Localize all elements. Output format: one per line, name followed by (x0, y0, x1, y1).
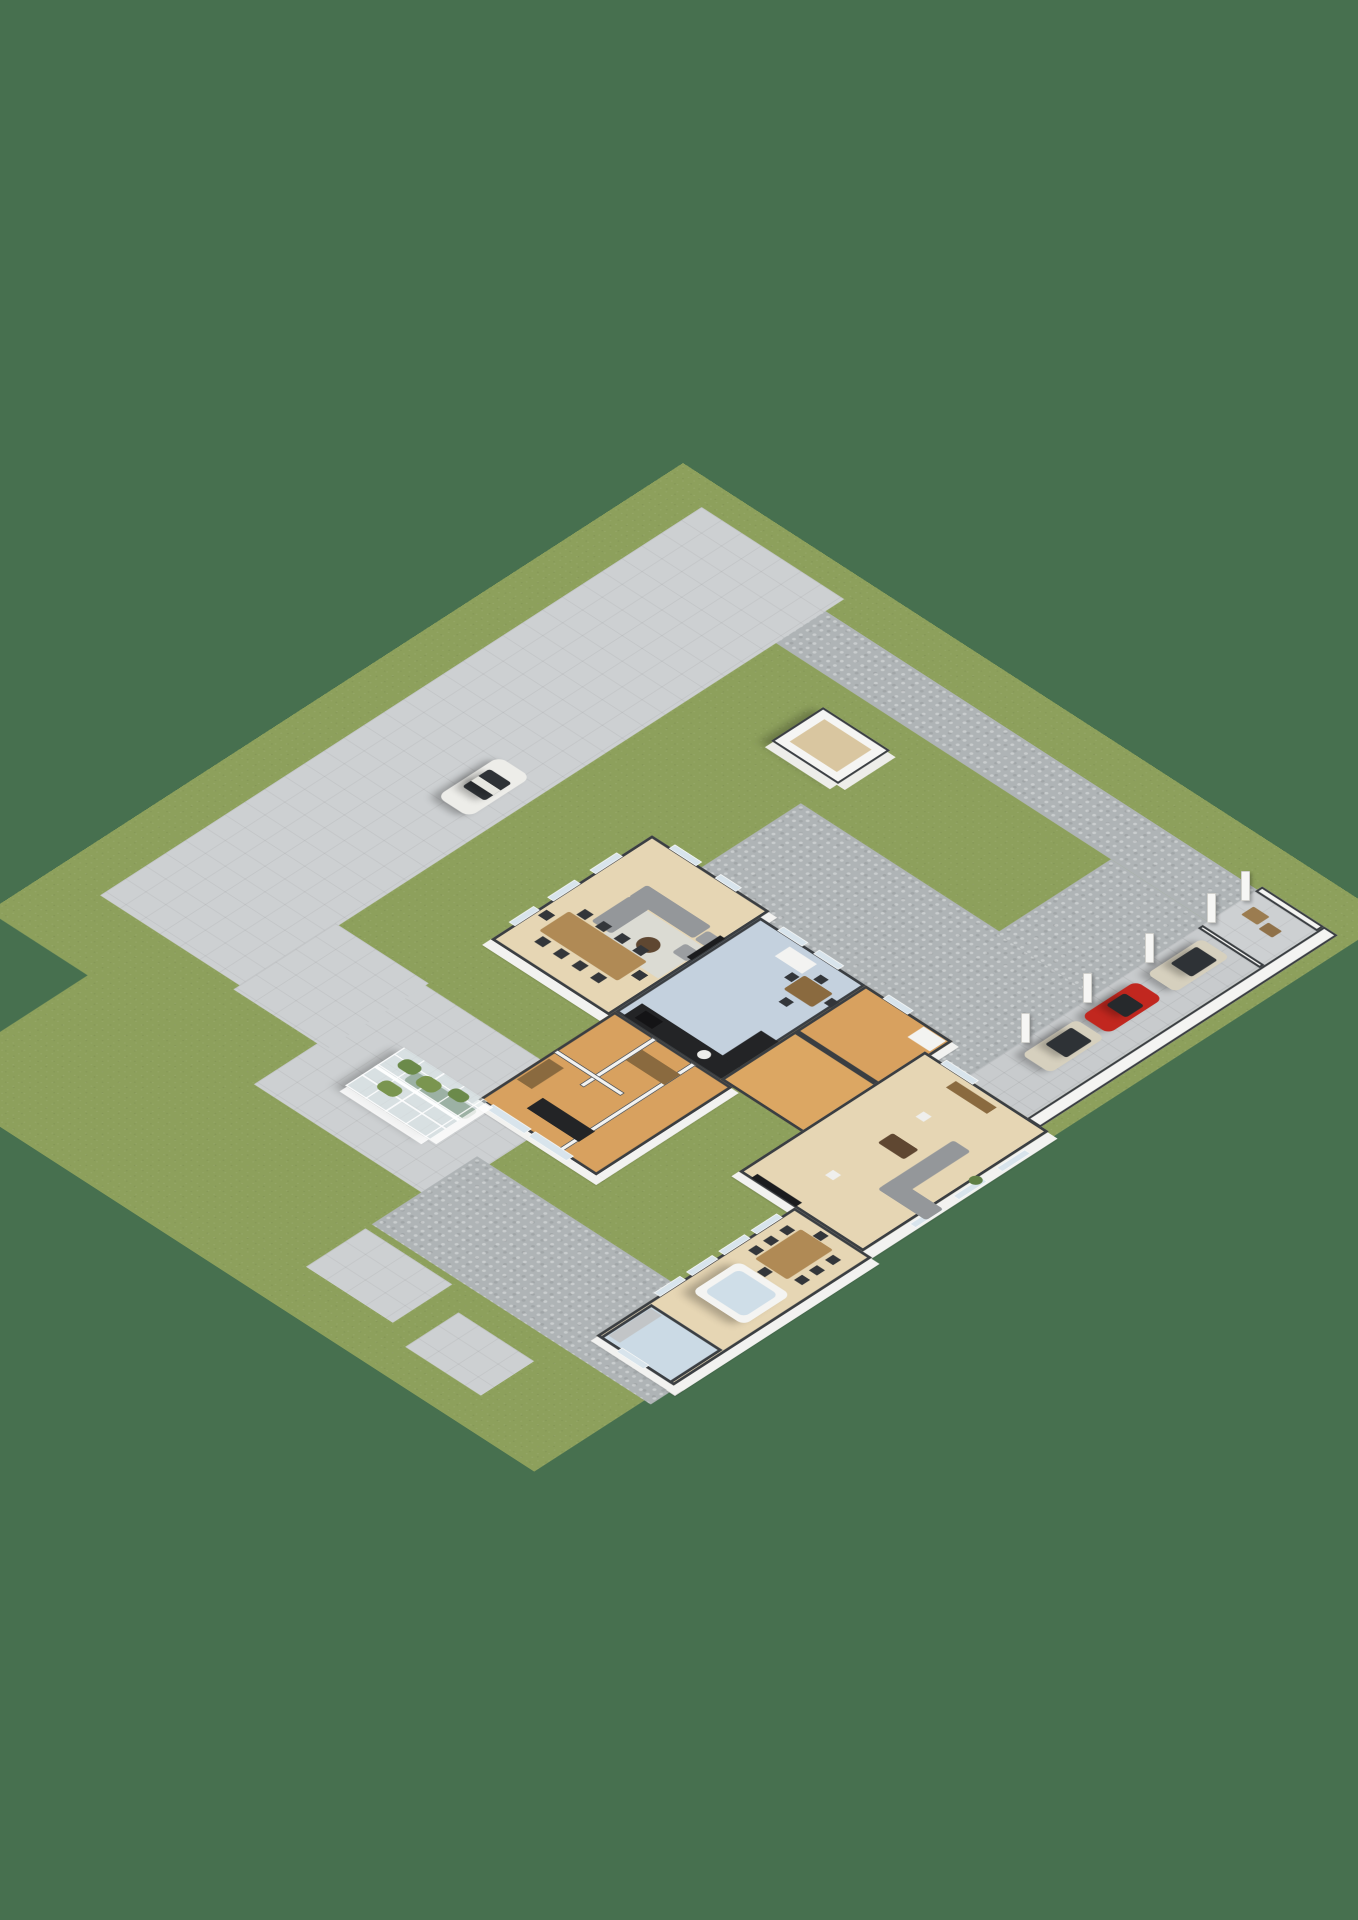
carport-post-5 (1021, 1013, 1030, 1043)
carport-post-2 (1207, 893, 1216, 923)
floorplan-3d-render (0, 0, 1358, 1920)
carport-post-4 (1083, 973, 1092, 1003)
carport-post-1 (1241, 871, 1250, 901)
carport-post-3 (1145, 933, 1154, 963)
